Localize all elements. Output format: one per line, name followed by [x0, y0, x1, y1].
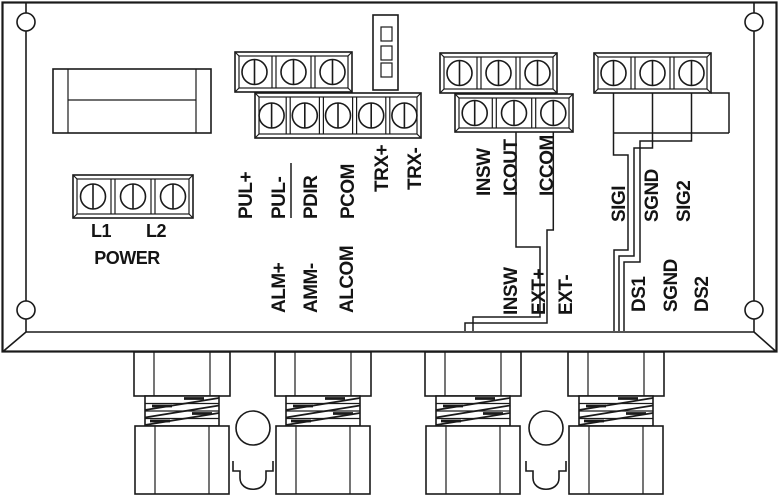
label-ext-plus: EXT+ [529, 269, 550, 315]
pulse-terminal-block-upper [235, 52, 352, 92]
label-trx-plus: TRX+ [372, 145, 393, 193]
power-terminal-block [73, 175, 193, 218]
label-amm-minus: AMM- [301, 263, 322, 313]
wire-housing-line [614, 93, 730, 133]
fuse-box [53, 69, 211, 133]
label-alcom: ALCOM [337, 246, 358, 313]
cable-gland-1 [134, 352, 230, 494]
terminal-screw [326, 103, 351, 128]
pulse-terminal-block-lower [255, 93, 421, 138]
label-icout: ICOUT [501, 139, 522, 197]
label-pdir: PDIR [301, 175, 322, 219]
terminal-screw [502, 101, 527, 126]
label-insw-lower: INSW [501, 267, 522, 315]
terminal-screw [525, 61, 550, 86]
mounting-hole-top-left [17, 13, 35, 31]
mounting-hole-bottom-left [17, 301, 35, 319]
label-l2: L2 [146, 221, 166, 241]
terminal-screw [320, 60, 345, 85]
terminal-screw [161, 184, 186, 209]
label-ds2: DS2 [692, 277, 713, 312]
terminal-screw [392, 103, 417, 128]
label-power: POWER [94, 248, 160, 268]
signal-terminal-block [594, 53, 711, 93]
label-sgnd: SGND [642, 169, 663, 222]
mounting-hole-bottom-right [745, 301, 763, 319]
terminal-screw [541, 101, 566, 126]
terminal-screw [601, 61, 626, 86]
terminal-screw [640, 61, 665, 86]
controller-wiring-diagram: L1 L2 POWER PUL+ PUL- PDIR PCOM TRX+ TRX… [0, 0, 780, 496]
label-l1: L1 [91, 221, 111, 241]
label-sig2: SIG2 [674, 181, 695, 222]
wiring-diagram-page: L1 L2 POWER PUL+ PUL- PDIR PCOM TRX+ TRX… [0, 0, 780, 496]
io-terminal-block-lower [455, 94, 573, 132]
terminal-screw [281, 60, 306, 85]
label-iccom: ICCOM [537, 135, 558, 196]
io-terminal-block-upper [440, 53, 557, 93]
label-pul-plus: PUL+ [236, 172, 257, 220]
label-pul-minus: PUL- [269, 177, 290, 220]
terminal-screw [121, 184, 146, 209]
label-pcom: PCOM [338, 164, 359, 219]
label-sgnd-lower: SGND [661, 259, 682, 312]
cable-gland-3 [425, 352, 521, 494]
terminal-screw [486, 61, 511, 86]
label-ds1: DS1 [629, 276, 650, 312]
terminal-screw [292, 103, 317, 128]
terminal-screw [679, 61, 704, 86]
cable-gland-4 [568, 352, 664, 494]
label-trx-minus: TRX- [405, 148, 426, 191]
terminal-screw [462, 101, 487, 126]
mounting-hole-top-right [745, 13, 763, 31]
cable-gland-2 [275, 352, 371, 494]
terminal-screw [259, 103, 284, 128]
jumper-header [373, 15, 398, 90]
strain-relief-tab-1 [233, 411, 273, 489]
terminal-screw [242, 60, 267, 85]
label-sigi: SIGI [609, 186, 630, 222]
label-ext-minus: EXT- [556, 275, 577, 315]
label-alm-plus: ALM+ [269, 262, 290, 313]
terminal-screw [359, 103, 384, 128]
label-insw: INSW [474, 148, 495, 196]
strain-relief-tab-2 [526, 411, 566, 489]
terminal-screw [81, 184, 106, 209]
terminal-screw [447, 61, 472, 86]
